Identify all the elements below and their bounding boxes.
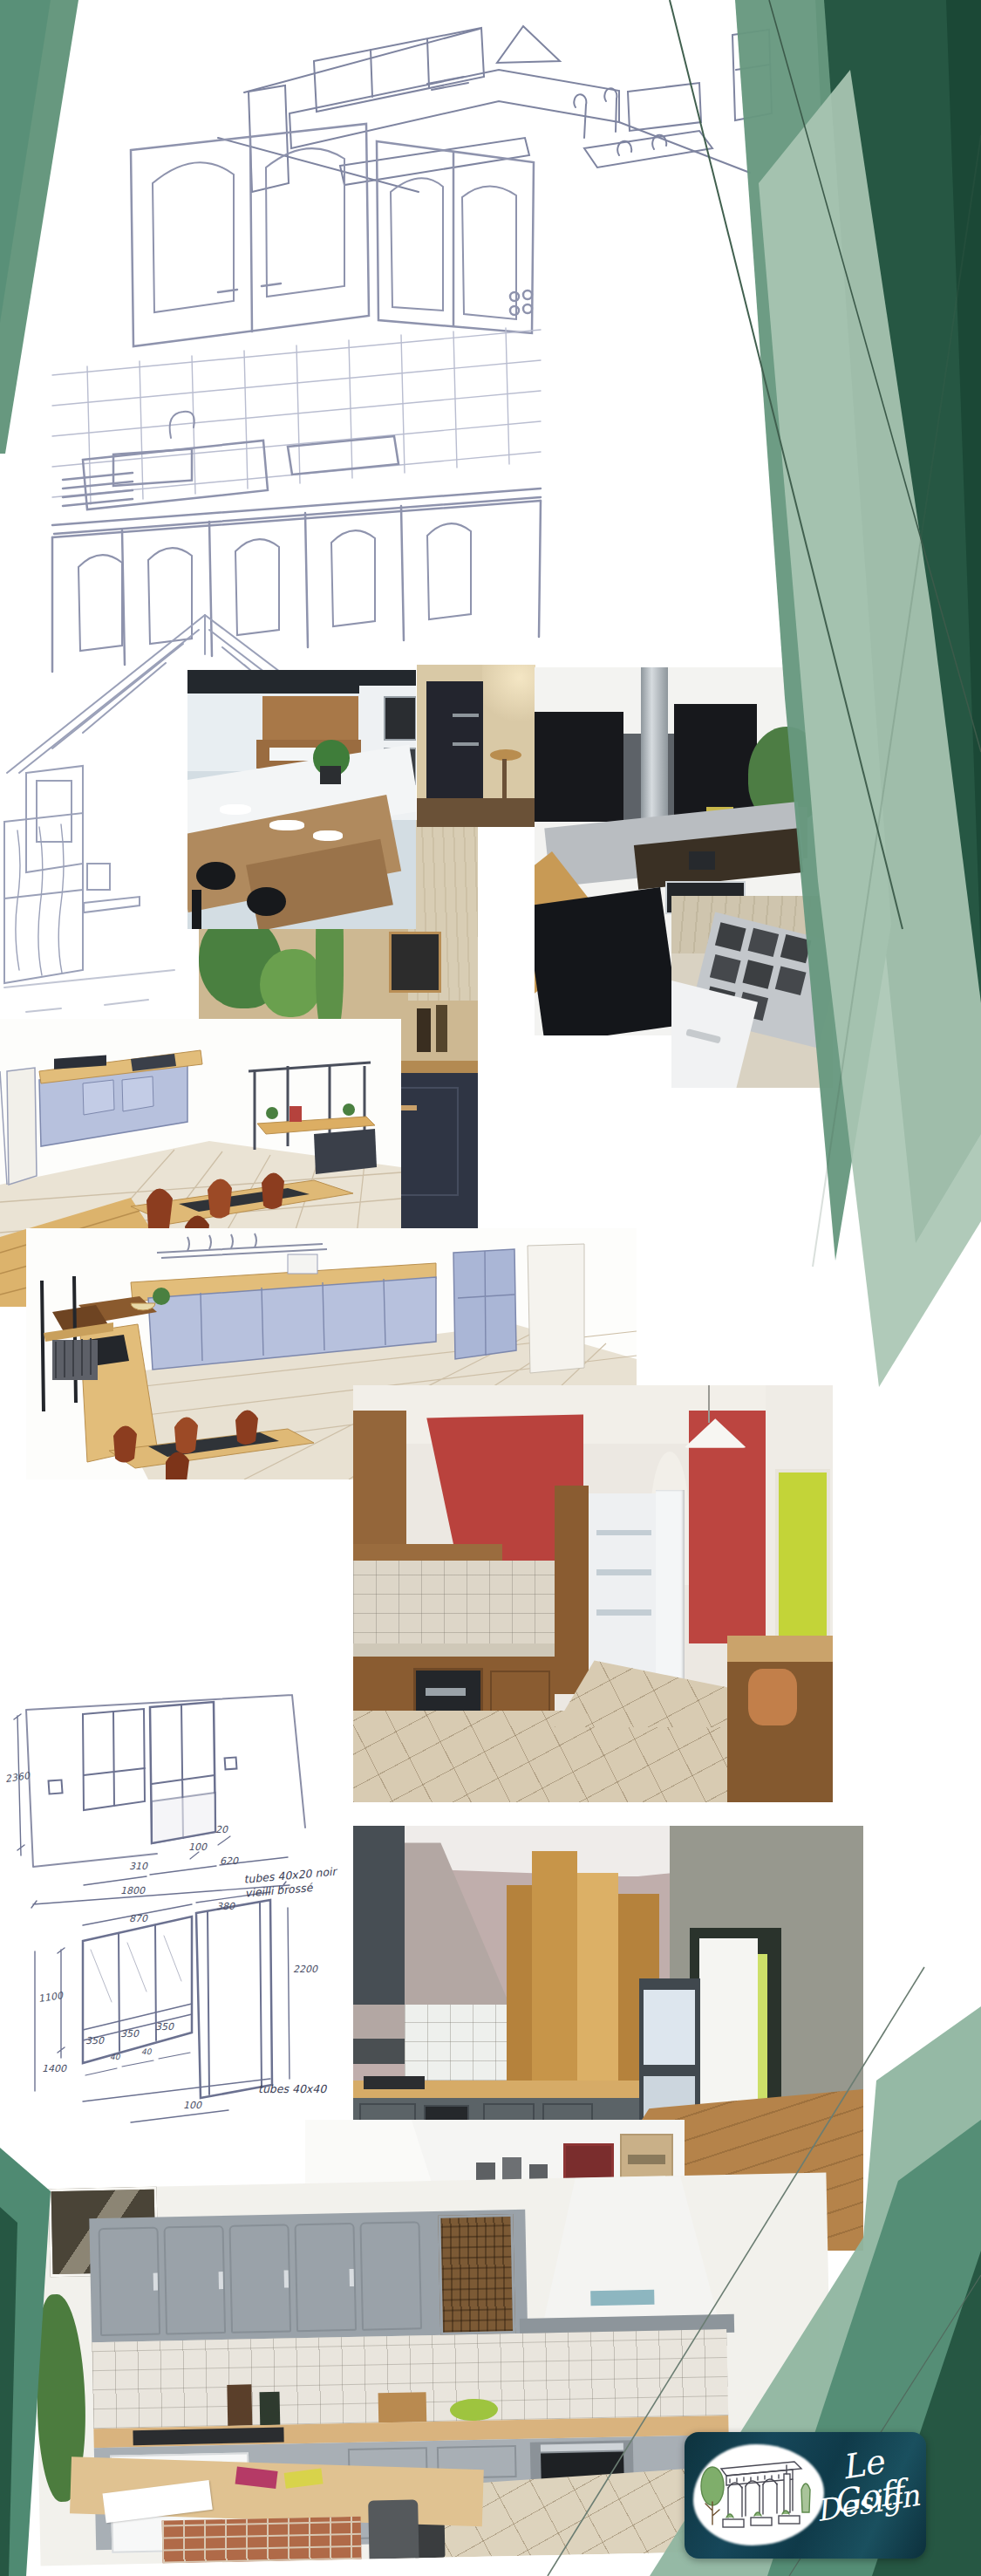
spice-tin [748, 928, 780, 958]
oak-plank [507, 1885, 532, 2089]
dim-label: 310 [129, 1861, 147, 1872]
island-tile-top [727, 1636, 833, 1663]
le-goff-design-logo: Le Goff Design [685, 2432, 926, 2559]
spice-tin [780, 934, 812, 964]
sign-text-line [628, 2155, 665, 2164]
bottle [228, 2384, 252, 2426]
bar-stool-2 [247, 887, 286, 916]
dim-label: 100 [188, 1841, 207, 1853]
cabinet-door [294, 2223, 357, 2332]
dim-label: 20 [215, 1824, 228, 1835]
wood-fridge-surround [555, 1486, 589, 1694]
wood-upper-cabinet [262, 696, 358, 740]
pencil-sketch-kitchen-front [0, 113, 549, 680]
dim-label: 380 [216, 1901, 235, 1912]
fridge-shelf [596, 1530, 651, 1536]
dim-label: 40 [110, 2053, 119, 2061]
fridge-interior [644, 1990, 695, 2065]
polygon-bottom-left-dark [0, 2207, 17, 2576]
plant-mass-2 [260, 949, 321, 1018]
dim-label: 1400 [42, 2063, 66, 2074]
cabinet-door [163, 2225, 226, 2334]
black-wardrobes-right [674, 704, 757, 815]
dark-floor [417, 798, 535, 827]
spice-tin [715, 922, 746, 952]
glass-door-cabinet [438, 2214, 515, 2335]
letterboard [389, 932, 441, 993]
pendant-chain [708, 1385, 710, 1423]
fridge-shelf [596, 1609, 651, 1616]
black-wardrobes-left [535, 712, 623, 823]
tile-backsplash [353, 1561, 555, 1652]
dim-label: 350 [120, 2028, 139, 2040]
gray-upper-cabinets [89, 2209, 528, 2342]
dim-label: 2200 [293, 1964, 317, 1975]
wood-beam [353, 1544, 502, 1561]
hood-blue-sign [590, 2289, 654, 2306]
bottle [259, 2391, 280, 2425]
cutting-board [378, 2392, 426, 2423]
dim-label: 870 [129, 1913, 147, 1924]
upper-gray-cabinet [353, 1826, 405, 2005]
dim-label: 1100 [37, 1990, 64, 2005]
photo-reference-spice-drawer [671, 896, 833, 1088]
pedal-bin [368, 2499, 419, 2559]
steel-chimney [641, 667, 668, 830]
spice-tin [710, 954, 741, 984]
plant-pot [320, 766, 341, 784]
dessert-plate [269, 820, 303, 830]
handle [350, 2269, 354, 2286]
dim-label: 100 [183, 2100, 201, 2111]
built-in-oven [384, 696, 416, 741]
dim-label: 350 [155, 2021, 174, 2033]
oak-plank [577, 1873, 618, 2089]
cabinet-handle-2 [453, 742, 479, 746]
fridge-shelf [596, 1569, 651, 1575]
spice-tin [743, 960, 774, 990]
island-base [727, 1636, 833, 1802]
black-island-body [535, 887, 680, 1035]
dim-label: 620 [220, 1855, 238, 1867]
oven-handle [541, 2443, 623, 2452]
oven-handle [426, 1688, 466, 1695]
cabinet-handle [453, 714, 479, 717]
handwritten-note: tubes 40x20 noir vieilli brossé [243, 1862, 362, 1900]
dim-label: 2360 [4, 1770, 31, 1785]
cabinet-door [98, 2227, 160, 2336]
black-cooktop [133, 2427, 284, 2445]
spice-tin [775, 967, 807, 996]
dim-label: 1800 [120, 1885, 145, 1896]
photo-reference-modern-island-kitchen [187, 670, 416, 929]
handle [284, 2270, 289, 2287]
dark-tall-cabinet [426, 681, 483, 798]
handle [219, 2272, 223, 2289]
towel [748, 1669, 797, 1725]
fridge-open-door [656, 1490, 685, 1698]
dim-label: 350 [85, 2035, 104, 2046]
drawer-handle [685, 1028, 721, 1043]
warm-light [482, 665, 535, 729]
handwritten-note: tubes 40x40 [258, 2082, 326, 2096]
hob [364, 2076, 425, 2089]
logo-building-sketch-icon [697, 2450, 819, 2540]
photo-before-existing-kitchen [353, 1385, 833, 1802]
technical-dimensions: 2360 20 100 310 620 1800 tubes 40x20 noi… [0, 1688, 375, 2142]
bar-island [71, 2459, 485, 2566]
bottle [417, 1008, 431, 1051]
wood-upper-cabinet [353, 1411, 406, 1544]
handle [153, 2272, 158, 2290]
cabinet-door [228, 2224, 291, 2333]
bar-stool [196, 862, 235, 891]
oak-plank [532, 1851, 578, 2089]
photo-reference-dark-unit-corner [417, 665, 535, 827]
sink-run [269, 748, 315, 761]
cabinet-door [359, 2221, 422, 2330]
coffee-cup [220, 804, 252, 815]
deco-cube [689, 851, 716, 870]
tile-backsplash [405, 2005, 507, 2081]
coffee-cup-2 [313, 830, 343, 841]
portfolio-page: 2360 20 100 310 620 1800 tubes 40x20 noi… [0, 0, 981, 2576]
dim-label: 40 [141, 2047, 151, 2056]
stool-leg [192, 890, 201, 929]
tile-counter [353, 1643, 555, 1656]
bottle-2 [436, 1005, 447, 1052]
brick-base [162, 2516, 361, 2563]
